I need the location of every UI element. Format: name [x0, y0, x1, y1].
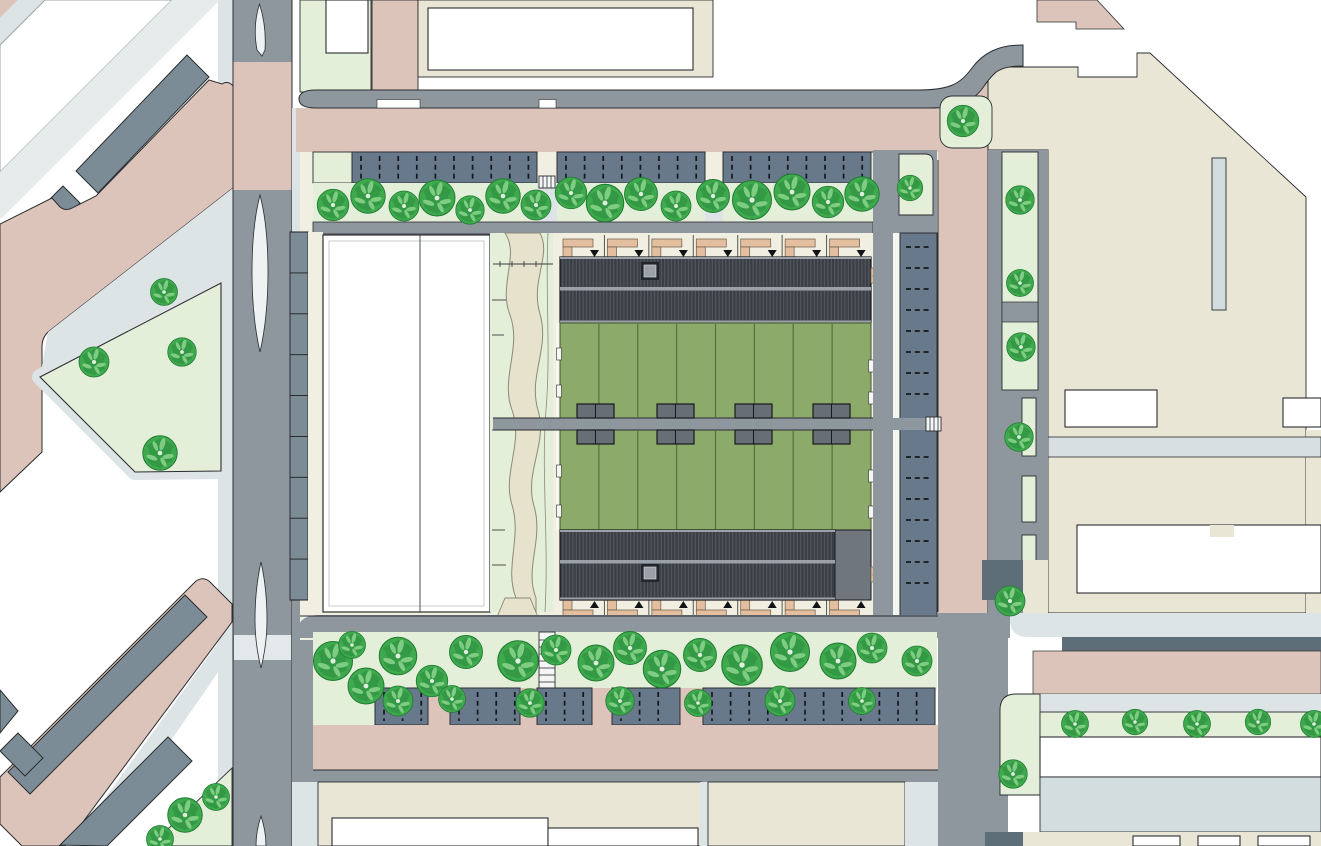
tree-icon: [317, 189, 349, 221]
tree-icon: [661, 191, 691, 221]
tree-icon: [79, 347, 109, 377]
tree-icon: [614, 632, 647, 665]
building-footprint: [428, 8, 693, 70]
building-footprint: [332, 818, 548, 846]
rowhouse-south-roof: [560, 530, 880, 600]
steps-east: [926, 417, 941, 431]
building-footprint: [1077, 525, 1321, 593]
tree-icon: [774, 174, 810, 210]
tree-icon: [339, 632, 366, 659]
tree-icon: [1062, 711, 1089, 738]
narrow-building: [1212, 158, 1226, 310]
building-footprint: [1065, 390, 1157, 427]
tree-icon: [1005, 423, 1034, 452]
tree-icon: [902, 646, 932, 676]
tree-icon: [486, 179, 521, 214]
tree-icon: [722, 645, 763, 686]
tree-icon: [849, 688, 876, 715]
tree-icon: [1007, 270, 1034, 297]
site-plan-svg: [0, 0, 1321, 846]
building-footprint: [548, 828, 698, 846]
tree-icon: [765, 686, 795, 716]
tree-icon: [389, 191, 419, 221]
large-white-building: [323, 235, 490, 612]
south-road: [938, 613, 1008, 846]
tree-icon: [439, 686, 466, 713]
tree-icon: [1006, 186, 1035, 215]
tree-icon: [947, 105, 979, 137]
tree-icon: [203, 784, 230, 811]
building-footprint: [1040, 737, 1321, 777]
east-road-verge: [988, 150, 1048, 613]
south-blocks: [292, 782, 938, 846]
tree-icon: [685, 690, 712, 717]
building-footprint: [326, 0, 368, 53]
courtyard: [493, 233, 937, 618]
tree-icon: [541, 635, 571, 665]
tree-icon: [812, 186, 844, 218]
tree-icon: [586, 184, 624, 222]
tree-icon: [606, 687, 635, 716]
driveway-notch: [539, 100, 556, 109]
tree-icon: [684, 639, 717, 672]
tree-icon: [995, 586, 1025, 616]
tree-icon: [1122, 709, 1148, 735]
site-plan-canvas: [0, 0, 1321, 846]
tree-icon: [771, 633, 810, 672]
tree-icon: [348, 668, 384, 704]
tree-icon: [999, 760, 1028, 789]
driveway-notch: [377, 100, 420, 109]
north-path: [313, 222, 873, 234]
tree-icon: [1184, 711, 1211, 738]
tree-icon: [143, 436, 178, 471]
tree-icon: [379, 637, 417, 675]
tree-icon: [450, 636, 483, 669]
building-strip: [1040, 777, 1321, 832]
tree-icon: [151, 279, 178, 306]
tree-icon: [1245, 709, 1271, 735]
tree-icon: [555, 177, 587, 209]
tree-icon: [643, 650, 681, 688]
tree-icon: [625, 178, 658, 211]
tree-icon: [498, 641, 539, 682]
north-parking: [313, 152, 893, 183]
tree-icon: [1007, 333, 1036, 362]
tree-icon: [456, 196, 485, 225]
tree-icon: [516, 689, 545, 718]
east-parking-strip: [873, 150, 941, 618]
tree-icon: [845, 177, 880, 212]
north-access-road: [372, 0, 418, 92]
tree-icon: [897, 175, 923, 201]
rowhouse-north-roof: [560, 257, 880, 323]
tree-icon: [383, 686, 413, 716]
tree-icon: [168, 338, 197, 367]
tree-icon: [521, 190, 551, 220]
west-parking-strip: [290, 232, 308, 600]
tree-icon: [419, 180, 455, 216]
central-path: [493, 418, 937, 430]
tree-icon: [578, 645, 614, 681]
building-footprint: [1283, 398, 1321, 427]
tree-icon: [168, 798, 203, 833]
east-side-street: [1048, 437, 1321, 457]
steps-north: [539, 176, 555, 188]
tree-icon: [820, 643, 856, 679]
tree-icon: [857, 633, 887, 663]
tree-icon: [351, 179, 386, 214]
tree-icon: [733, 181, 772, 220]
tree-icon: [697, 180, 730, 213]
